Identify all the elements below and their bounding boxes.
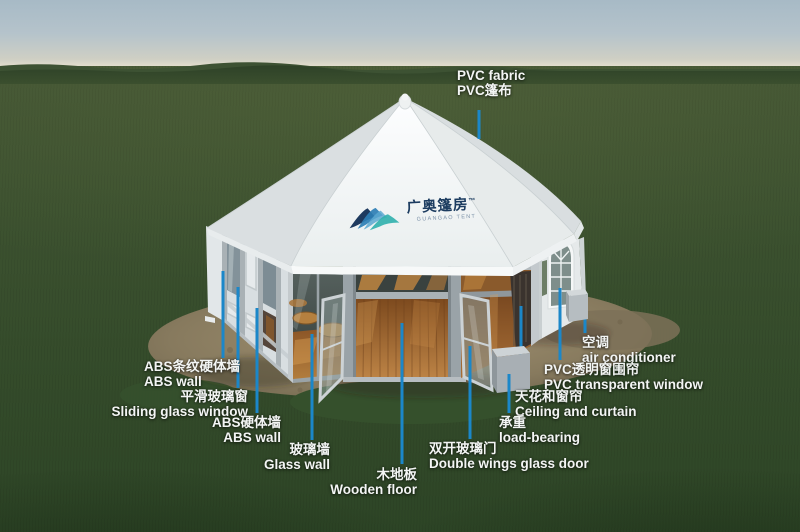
hills: [0, 62, 800, 84]
brand-logo-icon: [346, 201, 403, 232]
air-conditioner-unit: [566, 289, 588, 322]
annotation-pvc-fabric: PVC fabric PVC篷布: [457, 68, 525, 99]
corner-post-left: [288, 265, 293, 383]
annotation-abs-wall: ABS硬体墙 ABS wall: [212, 415, 281, 446]
door-wing-right: [461, 295, 492, 390]
load-bearing-block: [492, 346, 530, 393]
annotation-air-conditioner: 空调 air conditioner: [582, 335, 676, 366]
annotation-wooden-floor: 木地板 Wooden floor: [330, 467, 417, 498]
wall-back-left: [206, 226, 222, 320]
annotation-pvc-transparent-window: PVC透明窗围帘 PVC transparent window: [544, 362, 703, 393]
tent-roof: [207, 94, 584, 277]
annotation-load-bearing: 承重 load-bearing: [499, 415, 580, 446]
tent-illustration: [0, 0, 800, 532]
brand-name-en: GUANGAO TENT: [417, 214, 477, 223]
brand-name-zh: 广奥篷房™: [406, 198, 476, 216]
annotation-abs-striped-wall: ABS条纹硬体墙 ABS wall: [144, 359, 240, 390]
tent-product-render: 广奥篷房™ GUANGAO TENT PVC fabric PVC篷布 ABS条…: [0, 0, 800, 532]
annotation-glass-wall: 玻璃墙 Glass wall: [264, 442, 330, 473]
trademark-symbol: ™: [468, 198, 475, 205]
brand-logo-text: 广奥篷房™ GUANGAO TENT: [406, 198, 476, 224]
annotation-double-wings-glass-door: 双开玻璃门 Double wings glass door: [429, 441, 589, 472]
